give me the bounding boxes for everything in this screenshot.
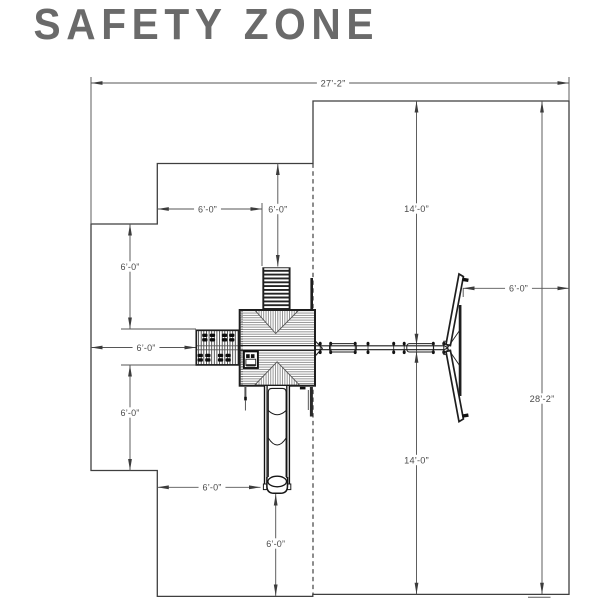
- svg-text:6’-0”: 6’-0”: [120, 262, 139, 272]
- svg-text:6’-0”: 6’-0”: [198, 204, 217, 214]
- svg-text:27’-2”: 27’-2”: [321, 78, 346, 88]
- svg-text:14’-0”: 14’-0”: [404, 455, 429, 465]
- svg-text:6’-0”: 6’-0”: [202, 483, 221, 493]
- svg-text:6’-0”: 6’-0”: [266, 539, 285, 549]
- svg-text:6’-0”: 6’-0”: [136, 343, 155, 353]
- svg-text:SAFETY ZONE: SAFETY ZONE: [34, 0, 380, 48]
- svg-text:28’-2”: 28’-2”: [530, 394, 555, 404]
- svg-text:6’-0”: 6’-0”: [268, 204, 287, 214]
- svg-text:6’-0”: 6’-0”: [509, 284, 528, 294]
- svg-text:6’-0”: 6’-0”: [120, 408, 139, 418]
- svg-text:14’-0”: 14’-0”: [404, 204, 429, 214]
